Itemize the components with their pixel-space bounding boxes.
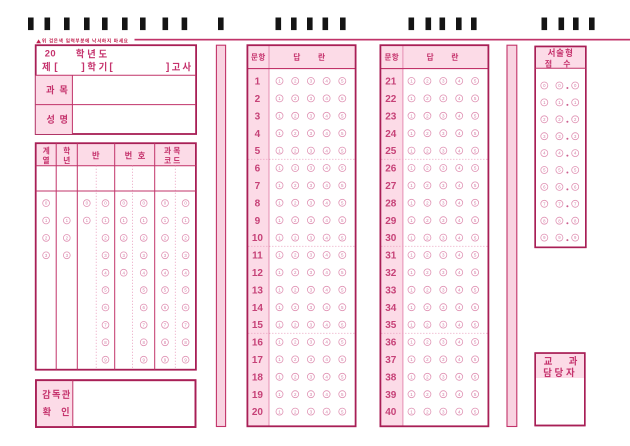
svg-text:7: 7 <box>255 181 261 192</box>
svg-text:21: 21 <box>385 77 397 88</box>
svg-text:19: 19 <box>252 390 264 401</box>
svg-text:31: 31 <box>385 251 397 262</box>
svg-text:32: 32 <box>385 268 397 279</box>
svg-text:4: 4 <box>255 129 261 140</box>
svg-text:18: 18 <box>252 372 264 383</box>
svg-text:15: 15 <box>252 320 264 331</box>
svg-text:38: 38 <box>385 372 397 383</box>
svg-text:3: 3 <box>255 111 261 122</box>
svg-text:36: 36 <box>385 338 397 349</box>
svg-text:37: 37 <box>385 355 397 366</box>
svg-text:13: 13 <box>252 285 264 296</box>
svg-text:]: ] <box>166 62 169 73</box>
svg-text:23: 23 <box>385 111 397 122</box>
svg-text:25: 25 <box>385 146 397 157</box>
svg-text:24: 24 <box>385 129 397 140</box>
svg-text:27: 27 <box>385 181 397 192</box>
svg-text:34: 34 <box>385 303 397 314</box>
svg-text:]: ] <box>81 62 84 73</box>
svg-text:6: 6 <box>255 164 261 175</box>
svg-text:28: 28 <box>385 198 397 209</box>
svg-text:17: 17 <box>252 355 264 366</box>
svg-text:10: 10 <box>252 233 264 244</box>
svg-text:22: 22 <box>385 94 397 105</box>
svg-text:29: 29 <box>385 216 397 227</box>
svg-text:20: 20 <box>252 407 264 418</box>
svg-text:1: 1 <box>255 77 261 88</box>
svg-text:9: 9 <box>255 216 261 227</box>
svg-text:30: 30 <box>385 233 397 244</box>
svg-text:5: 5 <box>255 146 261 157</box>
svg-text:8: 8 <box>255 198 261 209</box>
svg-text:40: 40 <box>385 407 397 418</box>
svg-text:33: 33 <box>385 285 397 296</box>
svg-text:12: 12 <box>252 268 264 279</box>
svg-text:14: 14 <box>252 303 264 314</box>
svg-text:2: 2 <box>255 94 261 105</box>
svg-text:16: 16 <box>252 338 264 349</box>
svg-text:39: 39 <box>385 390 397 401</box>
svg-text:35: 35 <box>385 320 397 331</box>
svg-text:11: 11 <box>252 251 263 262</box>
svg-text:26: 26 <box>385 164 397 175</box>
svg-text:20: 20 <box>45 48 56 59</box>
